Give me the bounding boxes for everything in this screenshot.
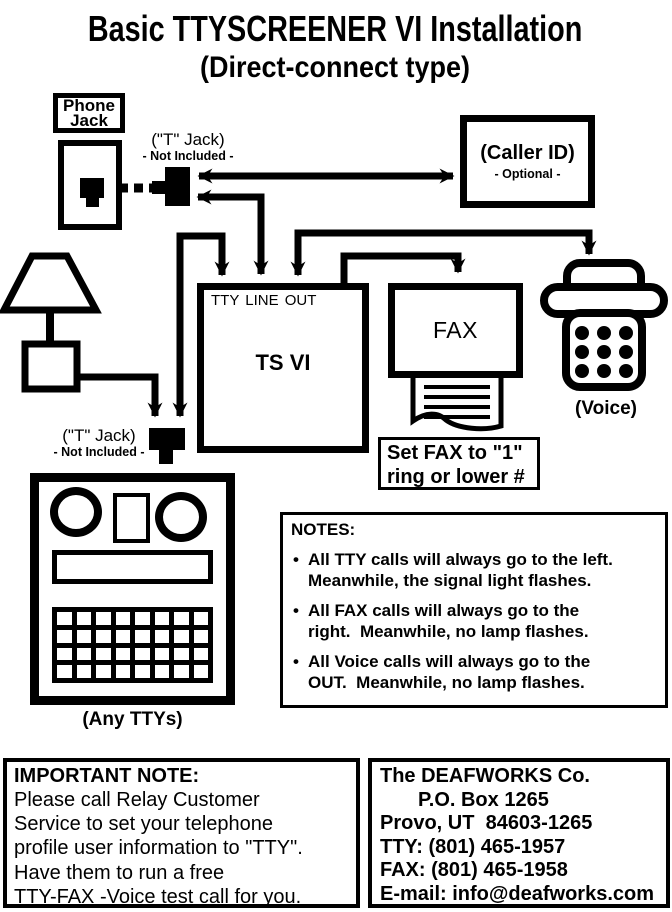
tty-keyboard bbox=[52, 607, 213, 683]
fax-setting-box: Set FAX to "1" ring or lower # bbox=[378, 437, 540, 490]
t-jack-bottom-note: - Not Included - bbox=[40, 446, 158, 459]
t-jack-top-icon bbox=[152, 167, 190, 206]
installation-diagram-page: Basic TTYSCREENER VI Installation (Direc… bbox=[0, 0, 672, 912]
contact-email: E-mail: info@deafworks.com bbox=[380, 883, 666, 907]
signal-lamp-icon bbox=[4, 256, 96, 389]
page-subtitle: (Direct-connect type) bbox=[200, 51, 470, 85]
note-item-fax: • All FAX calls will always go to the ri… bbox=[291, 600, 659, 642]
important-note-line: Please call Relay Customer bbox=[14, 788, 356, 812]
contact-fax-phone: FAX: (801) 465-1958 bbox=[380, 859, 666, 883]
important-note-line: Service to set your telephone bbox=[14, 812, 356, 836]
contact-company: The DEAFWORKS Co. bbox=[380, 765, 666, 789]
contact-box: The DEAFWORKS Co. P.O. Box 1265 Provo, U… bbox=[368, 758, 670, 908]
note-fax-line2: right. Meanwhile, no lamp flashes. bbox=[308, 621, 589, 642]
wall-jack-icon bbox=[80, 178, 104, 198]
caller-id-note: - Optional - bbox=[495, 167, 561, 181]
t-jack-bottom-title: ("T" Jack) bbox=[40, 426, 158, 445]
phone-jack-label: Phone Jack bbox=[53, 93, 125, 133]
t-jack-top-title: ("T" Jack) bbox=[128, 130, 248, 149]
fax-setting-line2: ring or lower # bbox=[387, 465, 537, 489]
note-fax-line1: All FAX calls will always go to the bbox=[308, 600, 589, 621]
wall-plate bbox=[58, 140, 122, 230]
caller-id-box: (Caller ID) - Optional - bbox=[460, 115, 595, 208]
fax-paper-icon bbox=[413, 374, 501, 429]
tty-device-icon bbox=[30, 473, 235, 705]
t-jack-top-note: - Not Included - bbox=[128, 150, 248, 163]
notes-heading: NOTES: bbox=[291, 519, 659, 540]
important-note-box: IMPORTANT NOTE: Please call Relay Custom… bbox=[3, 758, 360, 908]
important-note-heading: IMPORTANT NOTE: bbox=[14, 764, 356, 788]
ts-vi-box: TTY LINE OUT TS VI bbox=[197, 283, 369, 453]
voice-phone-icon bbox=[544, 263, 664, 387]
tty-acoustic-cup-left bbox=[50, 487, 102, 537]
note-item-tty: • All TTY calls will always go to the le… bbox=[291, 549, 659, 591]
fax-setting-line1: Set FAX to "1" bbox=[387, 441, 537, 465]
note-item-voice: • All Voice calls will always go to the … bbox=[291, 651, 659, 693]
caller-id-label: (Caller ID) bbox=[480, 142, 574, 165]
contact-tty-phone: TTY: (801) 465-1957 bbox=[380, 836, 666, 860]
important-note-line: profile user information to "TTY". bbox=[14, 836, 356, 860]
notes-box: NOTES: • All TTY calls will always go to… bbox=[280, 512, 668, 708]
bullet-icon: • bbox=[291, 651, 308, 693]
note-voice-line2: OUT. Meanwhile, no lamp flashes. bbox=[308, 672, 590, 693]
t-jack-bottom-label: ("T" Jack) - Not Included - bbox=[40, 426, 158, 459]
fax-box: FAX bbox=[388, 283, 523, 378]
note-tty-line2: Meanwhile, the signal light flashes. bbox=[308, 570, 613, 591]
tty-acoustic-cup-right bbox=[155, 492, 207, 542]
wall-jack-tab-icon bbox=[86, 198, 99, 207]
important-note-line: TTY-FAX -Voice test call for you. bbox=[14, 885, 356, 909]
bullet-icon: • bbox=[291, 549, 308, 591]
ts-vi-name: TS VI bbox=[204, 350, 362, 376]
voice-label: (Voice) bbox=[545, 398, 667, 420]
page-title: Basic TTYSCREENER VI Installation bbox=[88, 8, 583, 50]
header: Basic TTYSCREENER VI Installation (Direc… bbox=[20, 8, 650, 85]
tty-display bbox=[52, 550, 213, 584]
contact-city: Provo, UT 84603-1265 bbox=[380, 812, 666, 836]
ts-vi-ports-label: TTY LINE OUT bbox=[211, 292, 316, 309]
t-jack-top-label: ("T" Jack) - Not Included - bbox=[128, 130, 248, 163]
any-ttys-label: (Any TTYs) bbox=[30, 709, 235, 731]
important-note-line: Have them to run a free bbox=[14, 861, 356, 885]
note-voice-line1: All Voice calls will always go to the bbox=[308, 651, 590, 672]
note-tty-line1: All TTY calls will always go to the left… bbox=[308, 549, 613, 570]
tty-indicator-window bbox=[113, 493, 150, 543]
contact-pobox: P.O. Box 1265 bbox=[380, 789, 666, 813]
bullet-icon: • bbox=[291, 600, 308, 642]
wire-lamp-tjack bbox=[79, 377, 155, 416]
